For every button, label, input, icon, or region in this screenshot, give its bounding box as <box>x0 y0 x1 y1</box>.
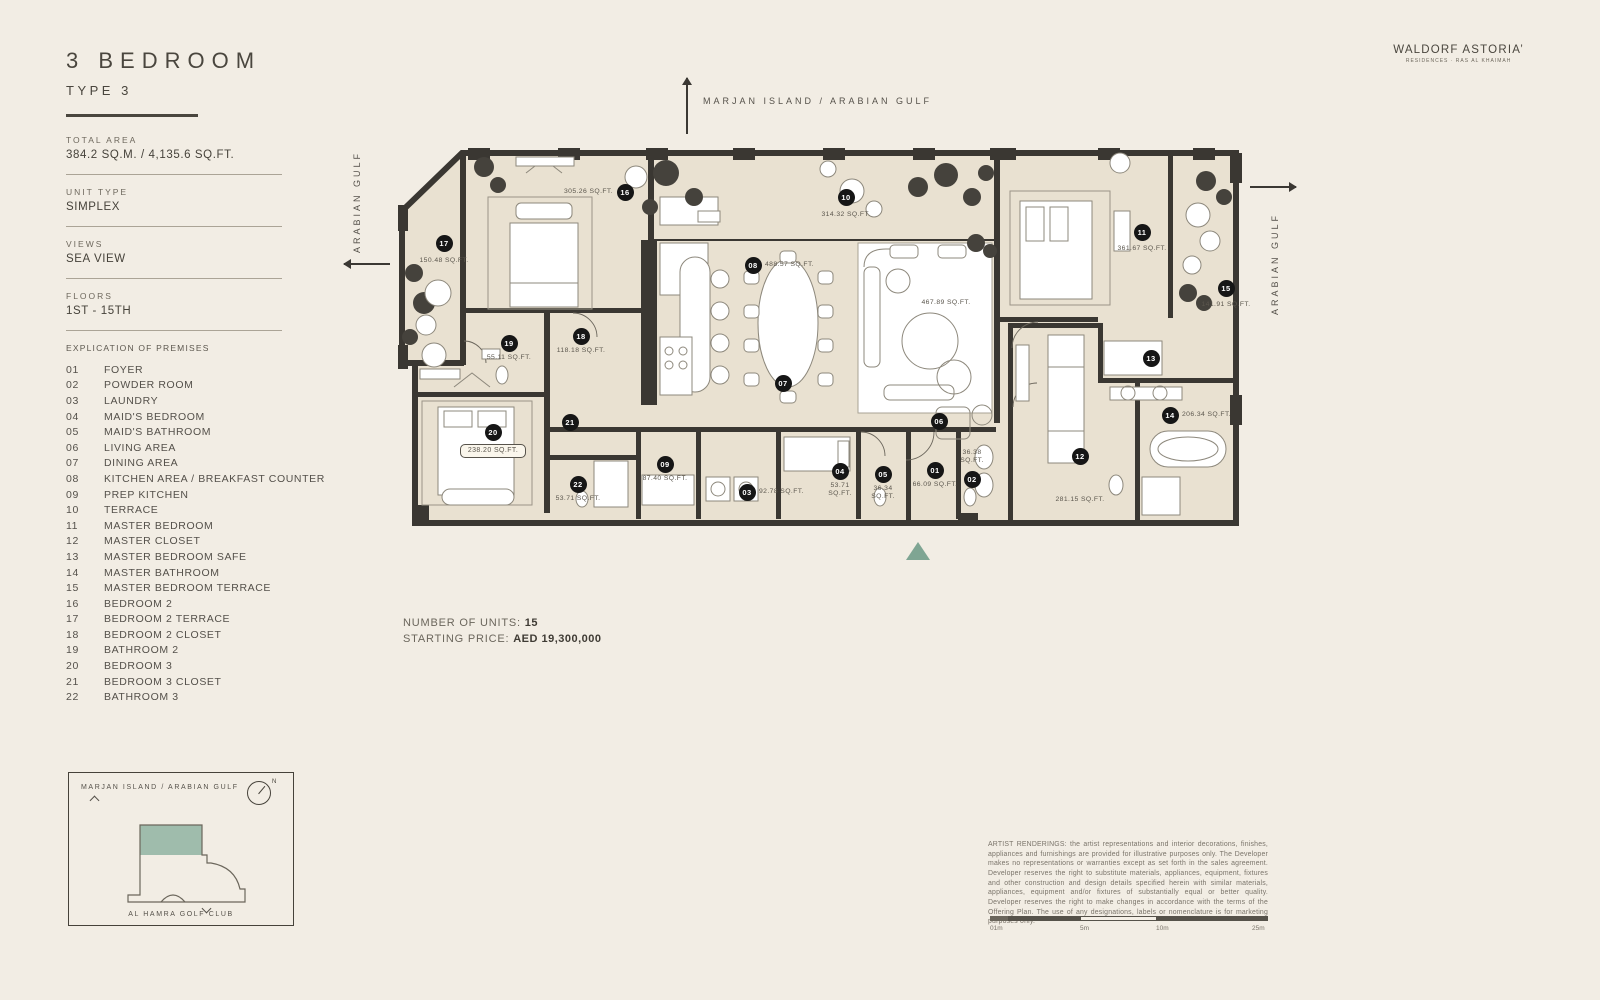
premise-name: MASTER BEDROOM <box>104 520 213 532</box>
explication-row: 16BEDROOM 2 <box>66 596 325 612</box>
units-label: NUMBER OF UNITS: <box>403 617 525 629</box>
scale-seg <box>1008 916 1080 921</box>
explication-row: 13MASTER BEDROOM SAFE <box>66 549 325 565</box>
room-marker-07: 07 <box>775 375 792 392</box>
premise-name: BATHROOM 2 <box>104 644 179 656</box>
divider <box>66 226 282 227</box>
room-area-label: 488.57 SQ.FT. <box>765 261 855 269</box>
premise-number: 03 <box>66 395 104 407</box>
page-subtitle: TYPE 3 <box>66 83 325 98</box>
explication-row: 04MAID'S BEDROOM <box>66 409 325 425</box>
floorplan-brochure-page: 3 BEDROOM TYPE 3 TOTAL AREA384.2 SQ.M. /… <box>0 0 1600 1000</box>
room-area-label: 55.11 SQ.FT. <box>464 354 554 362</box>
room-area-label: 281.15 SQ.FT. <box>1035 496 1125 504</box>
room-marker-16: 16 <box>617 184 634 201</box>
premise-number: 04 <box>66 411 104 423</box>
price-line: STARTING PRICE: AED 19,300,000 <box>403 633 602 645</box>
premise-number: 18 <box>66 629 104 641</box>
compass-label-right: ARABIAN GULF <box>1270 205 1280 315</box>
premise-name: MAID'S BATHROOM <box>104 426 211 438</box>
explication-row: 11MASTER BEDROOM <box>66 518 325 534</box>
explication-row: 18BEDROOM 2 CLOSET <box>66 627 325 643</box>
room-marker-12: 12 <box>1072 448 1089 465</box>
premise-name: BEDROOM 3 <box>104 660 172 672</box>
premise-name: KITCHEN AREA / BREAKFAST COUNTER <box>104 473 325 485</box>
spec-label: UNIT TYPE <box>66 187 325 197</box>
explication-row: 08KITCHEN AREA / BREAKFAST COUNTER <box>66 471 325 487</box>
room-marker-15: 15 <box>1218 280 1235 297</box>
premise-name: DINING AREA <box>104 457 178 469</box>
room-marker-02: 02 <box>964 471 981 488</box>
room-area-label: 53.71 SQ.FT. <box>533 495 623 503</box>
inset-building-outline <box>69 773 293 925</box>
scale-seg <box>1156 916 1268 921</box>
room-marker-08: 08 <box>745 257 762 274</box>
scale-tick: 10m <box>1156 925 1169 932</box>
explication-row: 22BATHROOM 3 <box>66 689 325 705</box>
premise-number: 06 <box>66 442 104 454</box>
explication-row: 17BEDROOM 2 TERRACE <box>66 612 325 628</box>
premise-name: PREP KITCHEN <box>104 489 189 501</box>
room-marker-19: 19 <box>501 335 518 352</box>
premise-number: 08 <box>66 473 104 485</box>
premise-name: TERRACE <box>104 504 158 516</box>
premise-name: MASTER BATHROOM <box>104 567 220 579</box>
scale-tick: 25m <box>1252 925 1265 932</box>
room-area-label: 36.38 SQ.FT. <box>927 449 1017 465</box>
west-arrow-icon <box>344 263 390 265</box>
premise-number: 12 <box>66 535 104 547</box>
divider <box>66 278 282 279</box>
scale-seg <box>990 916 1008 921</box>
premise-name: BEDROOM 3 CLOSET <box>104 676 222 688</box>
east-arrow-icon <box>1250 186 1296 188</box>
spec-value: 384.2 SQ.M. / 4,135.6 SQ.FT. <box>66 149 325 161</box>
brand-tagline: RESIDENCES · RAS AL KHAIMAH <box>1393 58 1524 64</box>
premise-name: MASTER CLOSET <box>104 535 200 547</box>
explication-title: EXPLICATION OF PREMISES <box>66 343 325 353</box>
room-area-label: 206.34 SQ.FT. <box>1182 411 1272 419</box>
premise-number: 20 <box>66 660 104 672</box>
room-area-label: 87.40 SQ.FT. <box>620 475 710 483</box>
room-area-label: 118.18 SQ.FT. <box>536 347 626 355</box>
explication-row: 06LIVING AREA <box>66 440 325 456</box>
spec-value: SEA VIEW <box>66 253 325 265</box>
room-marker-18: 18 <box>573 328 590 345</box>
explication-row: 03LAUNDRY <box>66 393 325 409</box>
highlighted-unit-block <box>140 825 202 855</box>
room-marker-06: 06 <box>931 413 948 430</box>
room-area-label: 314.32 SQ.FT. <box>801 211 891 219</box>
premise-number: 10 <box>66 504 104 516</box>
explication-row: 14MASTER BATHROOM <box>66 565 325 581</box>
premise-name: MASTER BEDROOM TERRACE <box>104 582 271 594</box>
compass-label-top: MARJAN ISLAND / ARABIAN GULF <box>703 96 932 106</box>
price-label: STARTING PRICE: <box>403 633 513 645</box>
room-marker-10: 10 <box>838 189 855 206</box>
room-area-label: 361.67 SQ.FT. <box>1097 245 1187 253</box>
premise-number: 05 <box>66 426 104 438</box>
spec-value: 1ST - 15TH <box>66 305 325 317</box>
premise-number: 16 <box>66 598 104 610</box>
explication-row: 05MAID'S BATHROOM <box>66 424 325 440</box>
premise-name: BATHROOM 3 <box>104 691 179 703</box>
premise-number: 13 <box>66 551 104 563</box>
room-marker-22: 22 <box>570 476 587 493</box>
north-arrow-icon <box>686 78 688 134</box>
premise-number: 21 <box>66 676 104 688</box>
divider <box>66 330 282 331</box>
units-value: 15 <box>525 617 538 629</box>
premise-name: POWDER ROOM <box>104 379 193 391</box>
room-area-label: 238.20 SQ.FT. <box>448 444 538 458</box>
price-value: AED 19,300,000 <box>513 633 601 645</box>
explication-row: 20BEDROOM 3 <box>66 658 325 674</box>
room-marker-13: 13 <box>1143 350 1160 367</box>
explication-row: 19BATHROOM 2 <box>66 643 325 659</box>
premise-number: 15 <box>66 582 104 594</box>
scale-seg <box>1080 916 1158 921</box>
room-marker-05: 05 <box>875 466 892 483</box>
premise-name: MASTER BEDROOM SAFE <box>104 551 247 563</box>
explication-row: 15MASTER BEDROOM TERRACE <box>66 580 325 596</box>
premise-number: 11 <box>66 520 104 532</box>
scale-tick: 01m <box>990 925 1003 932</box>
spec-value: SIMPLEX <box>66 201 325 213</box>
premise-number: 19 <box>66 644 104 656</box>
spec-label: FLOORS <box>66 291 325 301</box>
room-marker-14: 14 <box>1162 407 1179 424</box>
location-inset-map: MARJAN ISLAND / ARABIAN GULF N AL HAMRA … <box>68 772 294 926</box>
room-marker-09: 09 <box>657 456 674 473</box>
room-marker-03: 03 <box>739 484 756 501</box>
unit-specs: TOTAL AREA384.2 SQ.M. / 4,135.6 SQ.FT.UN… <box>66 135 325 331</box>
explication-row: 07DINING AREA <box>66 456 325 472</box>
explication-list: 01FOYER02POWDER ROOM03LAUNDRY04MAID'S BE… <box>66 362 325 705</box>
premise-number: 09 <box>66 489 104 501</box>
room-area-label: 467.89 SQ.FT. <box>901 299 991 307</box>
premise-name: FOYER <box>104 364 143 376</box>
title-rule <box>66 114 198 117</box>
premise-number: 22 <box>66 691 104 703</box>
explication-row: 21BEDROOM 3 CLOSET <box>66 674 325 690</box>
room-area-label: 305.26 SQ.FT. <box>523 188 613 196</box>
page-title-block: 3 BEDROOM TYPE 3 TOTAL AREA384.2 SQ.M. /… <box>66 48 325 705</box>
explication-row: 01FOYER <box>66 362 325 378</box>
premise-number: 14 <box>66 567 104 579</box>
scale-bar: 01m5m10m25m <box>990 916 1270 936</box>
entrance-marker-icon <box>906 542 930 560</box>
spec-label: TOTAL AREA <box>66 135 325 145</box>
scale-tick: 5m <box>1080 925 1089 932</box>
brand-logo: WALDORF ASTORIA’ RESIDENCES · RAS AL KHA… <box>1393 44 1524 64</box>
spec-label: VIEWS <box>66 239 325 249</box>
compass-label-left: ARABIAN GULF <box>352 143 362 253</box>
explication-row: 02POWDER ROOM <box>66 378 325 394</box>
room-area-label: 141.91 SQ.FT. <box>1181 301 1271 309</box>
room-marker-04: 04 <box>832 463 849 480</box>
premise-number: 01 <box>66 364 104 376</box>
room-marker-20: 20 <box>485 424 502 441</box>
room-marker-21: 21 <box>562 414 579 431</box>
inset-bottom-label: AL HAMRA GOLF CLUB <box>69 911 293 918</box>
explication-row: 09PREP KITCHEN <box>66 487 325 503</box>
premise-name: BEDROOM 2 <box>104 598 172 610</box>
premise-name: LIVING AREA <box>104 442 176 454</box>
premise-name: MAID'S BEDROOM <box>104 411 205 423</box>
premise-name: BEDROOM 2 CLOSET <box>104 629 222 641</box>
plan-labels-overlay: 16305.26 SQ.FT.10314.32 SQ.FT.17150.48 S… <box>398 145 1246 537</box>
premise-number: 17 <box>66 613 104 625</box>
premise-number: 07 <box>66 457 104 469</box>
divider <box>66 174 282 175</box>
premise-name: BEDROOM 2 TERRACE <box>104 613 230 625</box>
premise-number: 02 <box>66 379 104 391</box>
page-title: 3 BEDROOM <box>66 48 325 74</box>
room-area-label: 150.48 SQ.FT. <box>399 257 489 265</box>
brand-name: WALDORF ASTORIA’ <box>1393 44 1524 56</box>
premise-name: LAUNDRY <box>104 395 158 407</box>
disclaimer-text: ARTIST RENDERINGS: the artist representa… <box>988 840 1268 927</box>
room-marker-11: 11 <box>1134 224 1151 241</box>
units-line: NUMBER OF UNITS: 15 <box>403 617 538 629</box>
floor-plan: 16305.26 SQ.FT.10314.32 SQ.FT.17150.48 S… <box>398 145 1246 537</box>
explication-row: 12MASTER CLOSET <box>66 534 325 550</box>
explication-row: 10TERRACE <box>66 502 325 518</box>
room-marker-17: 17 <box>436 235 453 252</box>
